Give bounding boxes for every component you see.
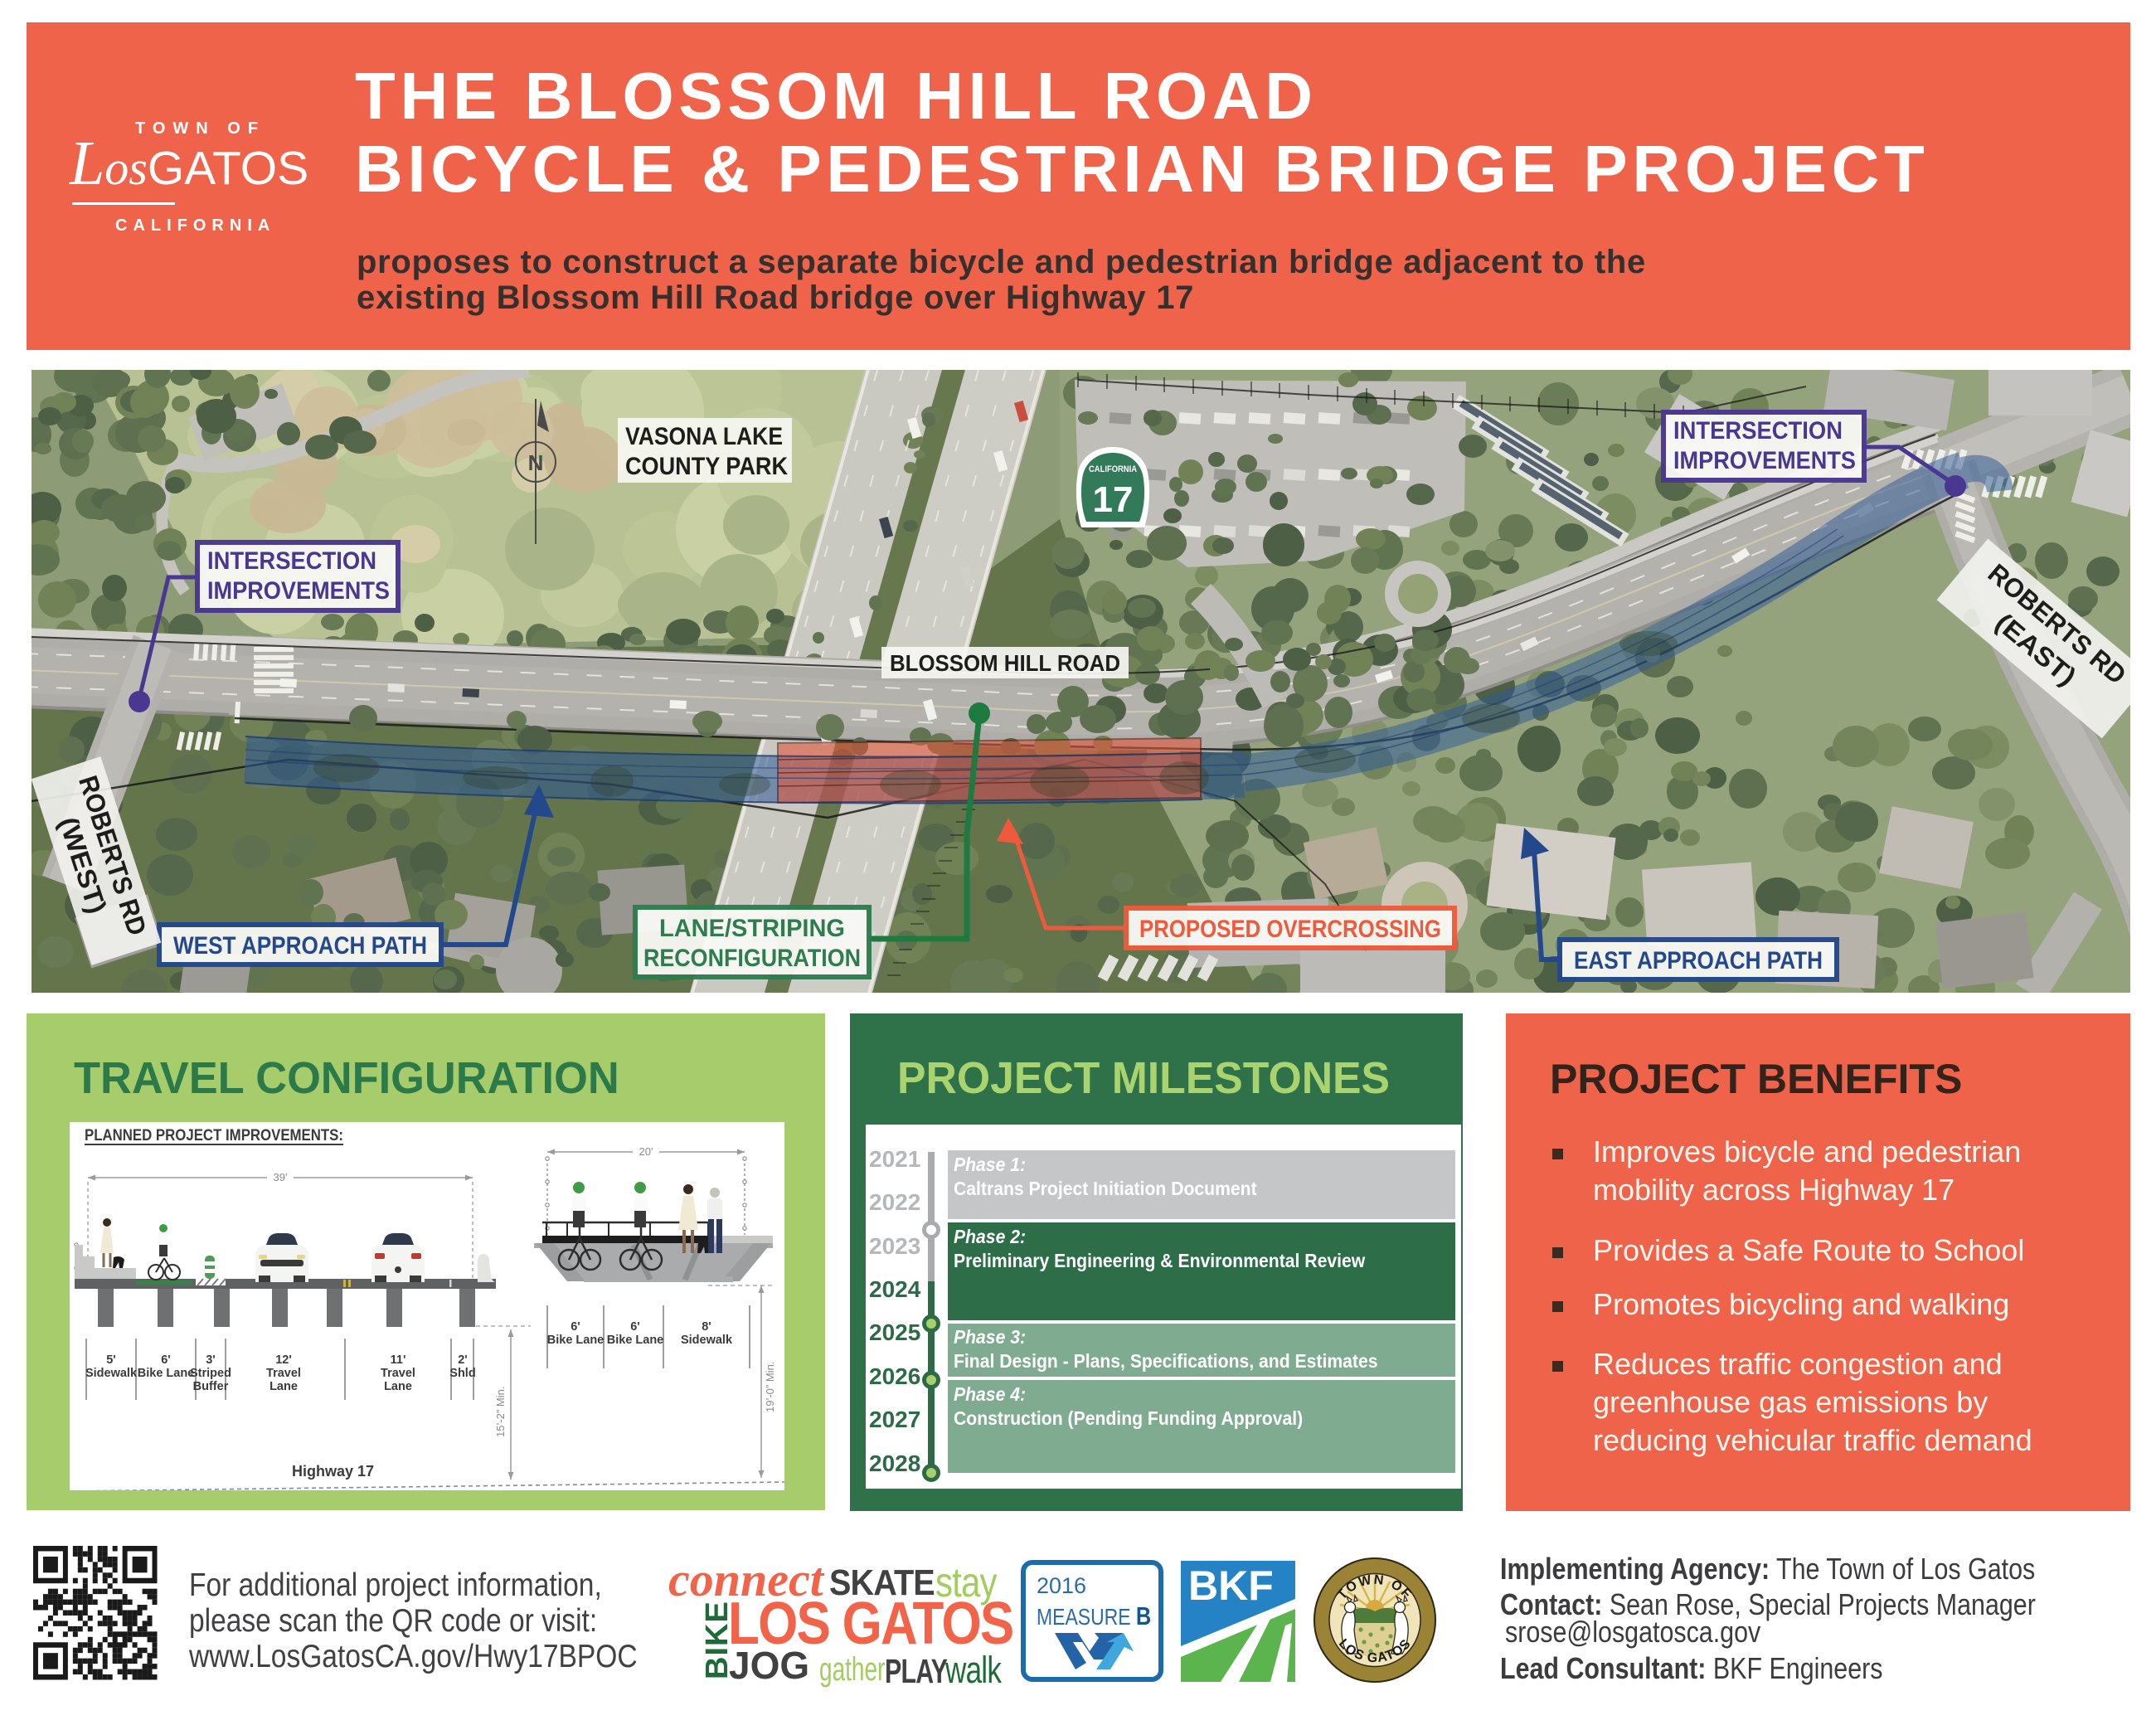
svg-text:Bike Lane: Bike Lane: [607, 1334, 664, 1347]
svg-text:WEST APPROACH PATH: WEST APPROACH PATH: [173, 932, 427, 960]
svg-text:3': 3': [206, 1353, 216, 1367]
svg-text:17: 17: [1093, 479, 1134, 520]
svg-text:2': 2': [458, 1353, 468, 1367]
svg-text:PROPOSED OVERCROSSING: PROPOSED OVERCROSSING: [1139, 916, 1441, 943]
svg-text:Shld: Shld: [449, 1367, 475, 1380]
svg-text:Striped: Striped: [190, 1367, 231, 1380]
svg-text:BLOSSOM HILL ROAD: BLOSSOM HILL ROAD: [890, 650, 1120, 676]
svg-text:PLANNED PROJECT IMPROVEMENTS:: PLANNED PROJECT IMPROVEMENTS:: [85, 1127, 343, 1144]
svg-text:Travel: Travel: [266, 1367, 301, 1380]
svg-text:5': 5': [106, 1353, 116, 1367]
svg-text:N: N: [528, 450, 544, 475]
svg-text:Lane: Lane: [384, 1380, 412, 1393]
svg-text:INTERSECTION: INTERSECTION: [1673, 417, 1843, 445]
svg-text:Buffer: Buffer: [193, 1380, 229, 1393]
svg-text:19’-0” Min.: 19’-0” Min.: [764, 1362, 776, 1412]
svg-text:VASONA LAKE: VASONA LAKE: [625, 423, 783, 450]
svg-text:COUNTY PARK: COUNTY PARK: [625, 453, 788, 480]
svg-text:IMPROVEMENTS: IMPROVEMENTS: [1673, 447, 1856, 474]
svg-text:11': 11': [391, 1353, 406, 1367]
svg-text:Highway 17: Highway 17: [292, 1463, 374, 1480]
svg-text:6': 6': [630, 1320, 640, 1334]
svg-text:IMPROVEMENTS: IMPROVEMENTS: [207, 577, 390, 605]
svg-text:Sidewalk: Sidewalk: [681, 1334, 733, 1347]
svg-text:INTERSECTION: INTERSECTION: [207, 547, 376, 575]
svg-text:8': 8': [702, 1320, 711, 1334]
svg-text:RECONFIGURATION: RECONFIGURATION: [643, 945, 861, 972]
svg-text:12': 12': [275, 1353, 292, 1367]
svg-text:39': 39': [274, 1171, 288, 1183]
svg-text:Travel: Travel: [381, 1367, 415, 1380]
svg-text:15’-2” Min.: 15’-2” Min.: [494, 1387, 507, 1437]
svg-text:LANE/STRIPING: LANE/STRIPING: [659, 915, 845, 942]
svg-text:Bike Lane: Bike Lane: [547, 1334, 605, 1347]
svg-text:6': 6': [571, 1320, 580, 1334]
svg-text:CALIFORNIA: CALIFORNIA: [1089, 464, 1137, 474]
svg-text:EAST APPROACH PATH: EAST APPROACH PATH: [1574, 947, 1823, 974]
svg-text:20': 20': [639, 1145, 653, 1158]
svg-text:Lane: Lane: [269, 1380, 298, 1393]
svg-text:Bike Lane: Bike Lane: [138, 1367, 195, 1380]
svg-text:6': 6': [161, 1353, 171, 1367]
svg-text:Sidewalk: Sidewalk: [85, 1367, 138, 1380]
